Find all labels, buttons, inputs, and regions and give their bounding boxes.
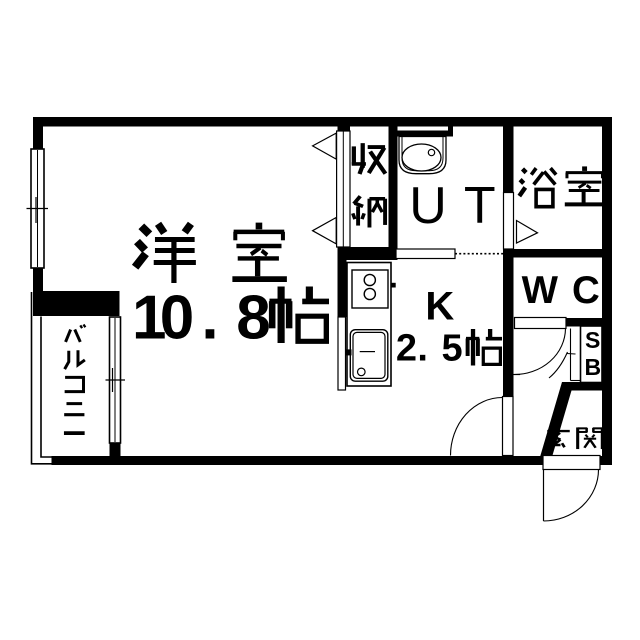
svg-text:C: C [572, 269, 600, 312]
svg-text:T: T [464, 177, 496, 235]
svg-text:B: B [585, 354, 602, 380]
svg-text:2.5: 2.5 [396, 328, 463, 370]
svg-text:W: W [522, 269, 559, 312]
svg-text:10.8: 10.8 [132, 283, 271, 352]
svg-text:S: S [585, 327, 600, 353]
svg-text:U: U [409, 177, 447, 235]
svg-text:K: K [425, 285, 454, 329]
